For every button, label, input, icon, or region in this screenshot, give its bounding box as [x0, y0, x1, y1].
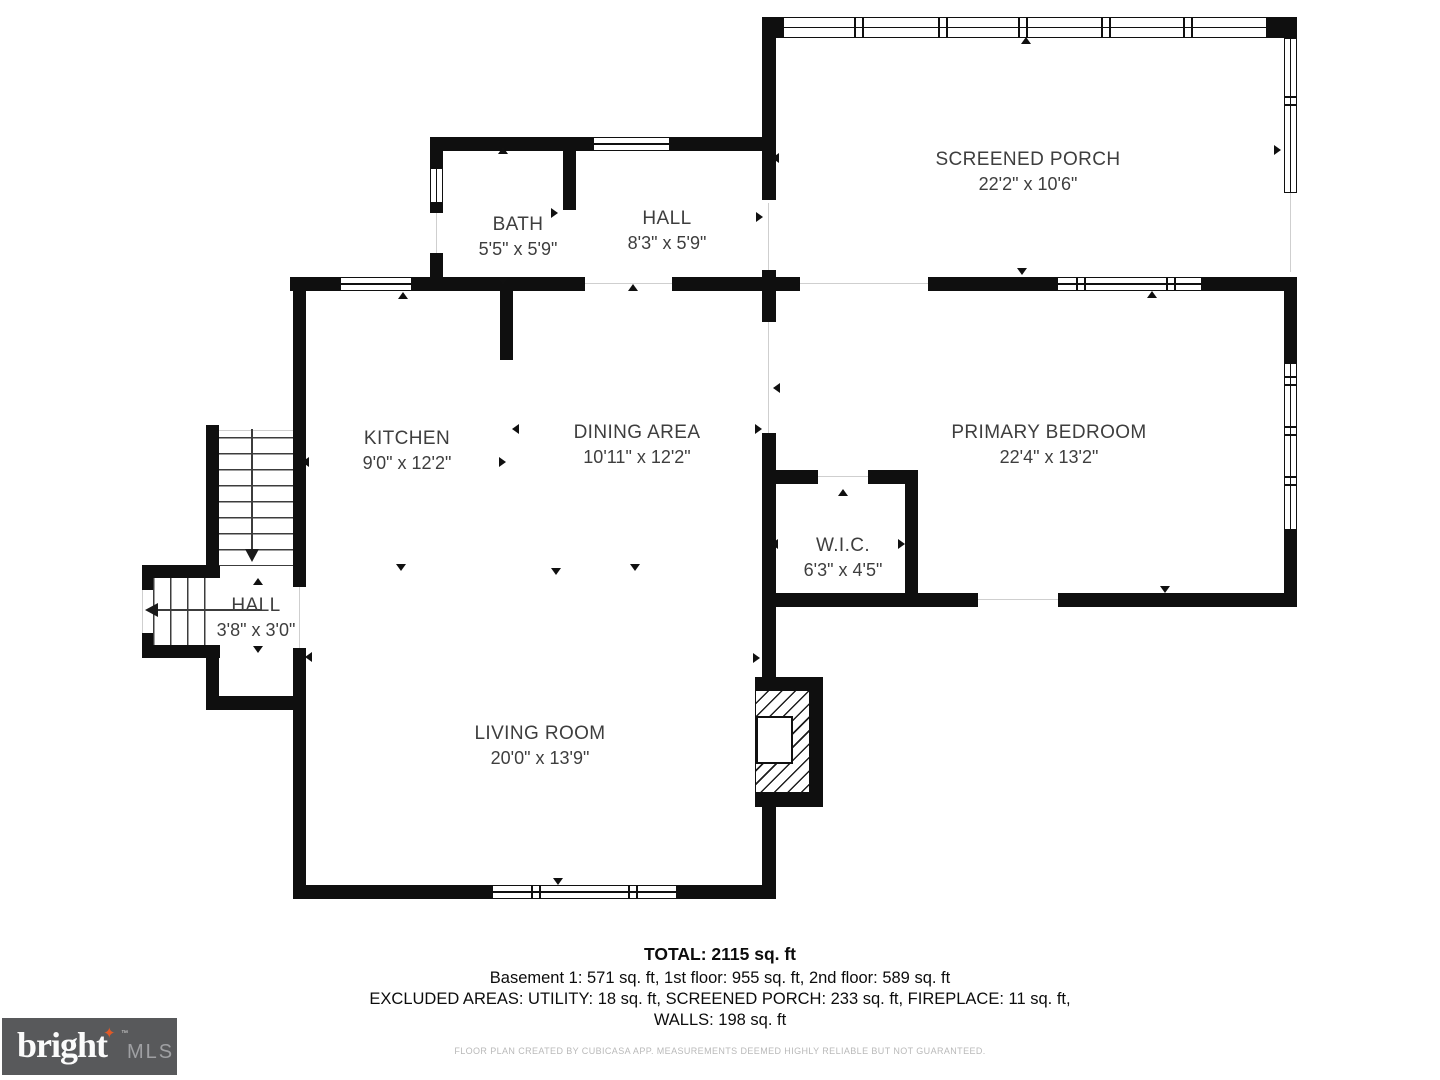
room-dims: 9'0" x 12'2" — [307, 451, 507, 476]
wall — [206, 696, 306, 710]
logo-trademark: ™ — [121, 1030, 128, 1037]
wall — [500, 291, 513, 360]
window-mullion — [1285, 484, 1296, 486]
window-mullion — [1109, 18, 1111, 37]
door-marker — [396, 564, 406, 571]
door-marker — [398, 292, 408, 299]
staircase-upper-treads — [219, 437, 293, 566]
room-dims: 3'8" x 3'0" — [176, 618, 336, 643]
wall — [672, 277, 776, 291]
room-dims: 8'3" x 5'9" — [577, 231, 757, 256]
door-marker — [772, 153, 779, 163]
window-mullion — [1183, 18, 1185, 37]
room-dims: 22'2" x 10'6" — [878, 172, 1178, 197]
window-mullion — [1191, 18, 1193, 37]
door-marker — [1147, 291, 1157, 298]
window-mullion — [1285, 434, 1296, 436]
bright-mls-logo: bright ✦ ™ MLS — [2, 1018, 177, 1075]
wall — [293, 648, 306, 898]
wall — [293, 277, 306, 573]
room-name: PRIMARY BEDROOM — [899, 420, 1199, 445]
total-area-text: TOTAL: 2115 sq. ft — [0, 944, 1440, 965]
fireplace-firebox — [756, 716, 793, 764]
wall — [430, 137, 443, 168]
window — [1057, 277, 1202, 291]
room-dims: 5'5" x 5'9" — [448, 237, 588, 262]
door-marker — [553, 878, 563, 885]
window-mullion — [1018, 18, 1020, 37]
room-name: SCREENED PORCH — [878, 147, 1178, 172]
opening-threshold — [219, 430, 293, 431]
wall — [1267, 17, 1297, 38]
wall — [142, 565, 153, 590]
room-name: W.I.C. — [763, 533, 923, 558]
door-marker — [1160, 586, 1170, 593]
walls-area-text: WALLS: 198 sq. ft — [0, 1011, 1440, 1030]
door-marker — [305, 652, 312, 662]
window — [492, 885, 677, 899]
wall — [142, 633, 153, 658]
window-mullion — [1285, 96, 1296, 98]
door-marker — [1021, 37, 1031, 44]
floor-areas-text: Basement 1: 571 sq. ft, 1st floor: 955 s… — [0, 969, 1440, 988]
window-mullion — [539, 886, 541, 898]
wall — [762, 17, 783, 38]
window-mullion — [1174, 278, 1176, 290]
wall — [142, 565, 220, 578]
window-mullion — [938, 18, 940, 37]
disclaimer-text: FLOOR PLAN CREATED BY CUBICASA APP. MEAS… — [0, 1046, 1440, 1056]
room-label-dining-area: DINING AREA 10'11" x 12'2" — [517, 420, 757, 470]
window-mullion — [1026, 18, 1028, 37]
wall — [206, 425, 219, 573]
window-mullion — [946, 18, 948, 37]
door-marker — [1017, 268, 1027, 275]
wall — [1202, 277, 1297, 291]
wall — [670, 137, 776, 151]
window — [593, 137, 670, 151]
wall — [762, 17, 776, 200]
window-mullion — [1166, 278, 1168, 290]
logo-brand-text: bright — [17, 1024, 107, 1066]
window-mullion — [1076, 278, 1078, 290]
window-mullion — [1285, 426, 1296, 428]
room-name: BATH — [448, 212, 588, 237]
logo-suffix-text: MLS — [127, 1041, 174, 1064]
window-mullion — [1285, 376, 1296, 378]
door-marker — [498, 278, 508, 285]
wall — [762, 593, 978, 607]
wall — [762, 277, 800, 291]
wall — [563, 151, 576, 210]
room-name: DINING AREA — [517, 420, 757, 445]
room-name: HALL — [577, 206, 757, 231]
wall — [430, 203, 443, 213]
wall — [293, 573, 306, 587]
opening-threshold — [978, 599, 1058, 600]
wall — [1284, 277, 1297, 363]
room-dims: 6'3" x 4'5" — [763, 558, 923, 583]
wall — [762, 607, 776, 677]
window-mullion — [1101, 18, 1103, 37]
room-label-screened-porch: SCREENED PORCH 22'2" x 10'6" — [878, 147, 1178, 197]
window — [340, 277, 412, 291]
room-label-hall-upper: HALL 8'3" x 5'9" — [577, 206, 757, 256]
door-marker — [498, 147, 508, 154]
window-mullion — [628, 886, 630, 898]
window — [1284, 38, 1297, 193]
window-mullion — [1285, 476, 1296, 478]
window — [783, 17, 1267, 38]
logo-star-icon: ✦ — [103, 1024, 116, 1042]
door-marker — [1274, 145, 1281, 155]
window-mullion — [1084, 278, 1086, 290]
opening-threshold — [142, 590, 143, 633]
opening-threshold — [800, 283, 928, 284]
wall — [430, 137, 593, 151]
wall — [293, 885, 492, 899]
door-marker — [551, 568, 561, 575]
window — [1284, 363, 1297, 530]
room-dims: 10'11" x 12'2" — [517, 445, 757, 470]
opening-threshold — [818, 476, 868, 477]
staircase-down-arrow — [245, 549, 259, 562]
staircase-left-arrow — [145, 603, 158, 617]
door-marker — [253, 578, 263, 585]
room-dims: 20'0" x 13'9" — [390, 746, 690, 771]
room-name: KITCHEN — [307, 426, 507, 451]
window — [430, 168, 443, 203]
floor-plan-page: SCREENED PORCH 22'2" x 10'6" BATH 5'5" x… — [0, 0, 1440, 1080]
room-label-kitchen: KITCHEN 9'0" x 12'2" — [307, 426, 507, 476]
room-dims: 22'4" x 13'2" — [899, 445, 1199, 470]
wall — [928, 277, 1057, 291]
door-marker — [253, 646, 263, 653]
room-label-bath: BATH 5'5" x 5'9" — [448, 212, 588, 262]
opening-threshold — [768, 322, 769, 433]
staircase-upper-centerline — [251, 429, 253, 551]
door-marker — [753, 653, 760, 663]
room-name: HALL — [176, 593, 336, 618]
window-mullion — [636, 886, 638, 898]
room-label-wic: W.I.C. 6'3" x 4'5" — [763, 533, 923, 583]
room-label-hall-lower: HALL 3'8" x 3'0" — [176, 593, 336, 643]
excluded-areas-text: EXCLUDED AREAS: UTILITY: 18 sq. ft, SCRE… — [0, 990, 1440, 1009]
door-marker — [838, 489, 848, 496]
opening-threshold — [1290, 193, 1291, 272]
wall — [677, 885, 776, 899]
door-marker — [630, 564, 640, 571]
room-name: LIVING ROOM — [390, 721, 690, 746]
window-mullion — [862, 18, 864, 37]
window-mullion — [1285, 384, 1296, 386]
wall — [1058, 593, 1297, 607]
room-label-living-room: LIVING ROOM 20'0" x 13'9" — [390, 721, 690, 771]
wall — [762, 470, 818, 484]
window-mullion — [854, 18, 856, 37]
opening-threshold — [768, 203, 769, 270]
window-mullion — [1285, 104, 1296, 106]
door-marker — [628, 284, 638, 291]
window-mullion — [531, 886, 533, 898]
opening-threshold — [436, 213, 437, 253]
door-marker — [773, 383, 780, 393]
door-marker — [756, 212, 763, 222]
wall — [142, 645, 220, 658]
room-label-primary-bedroom: PRIMARY BEDROOM 22'4" x 13'2" — [899, 420, 1199, 470]
